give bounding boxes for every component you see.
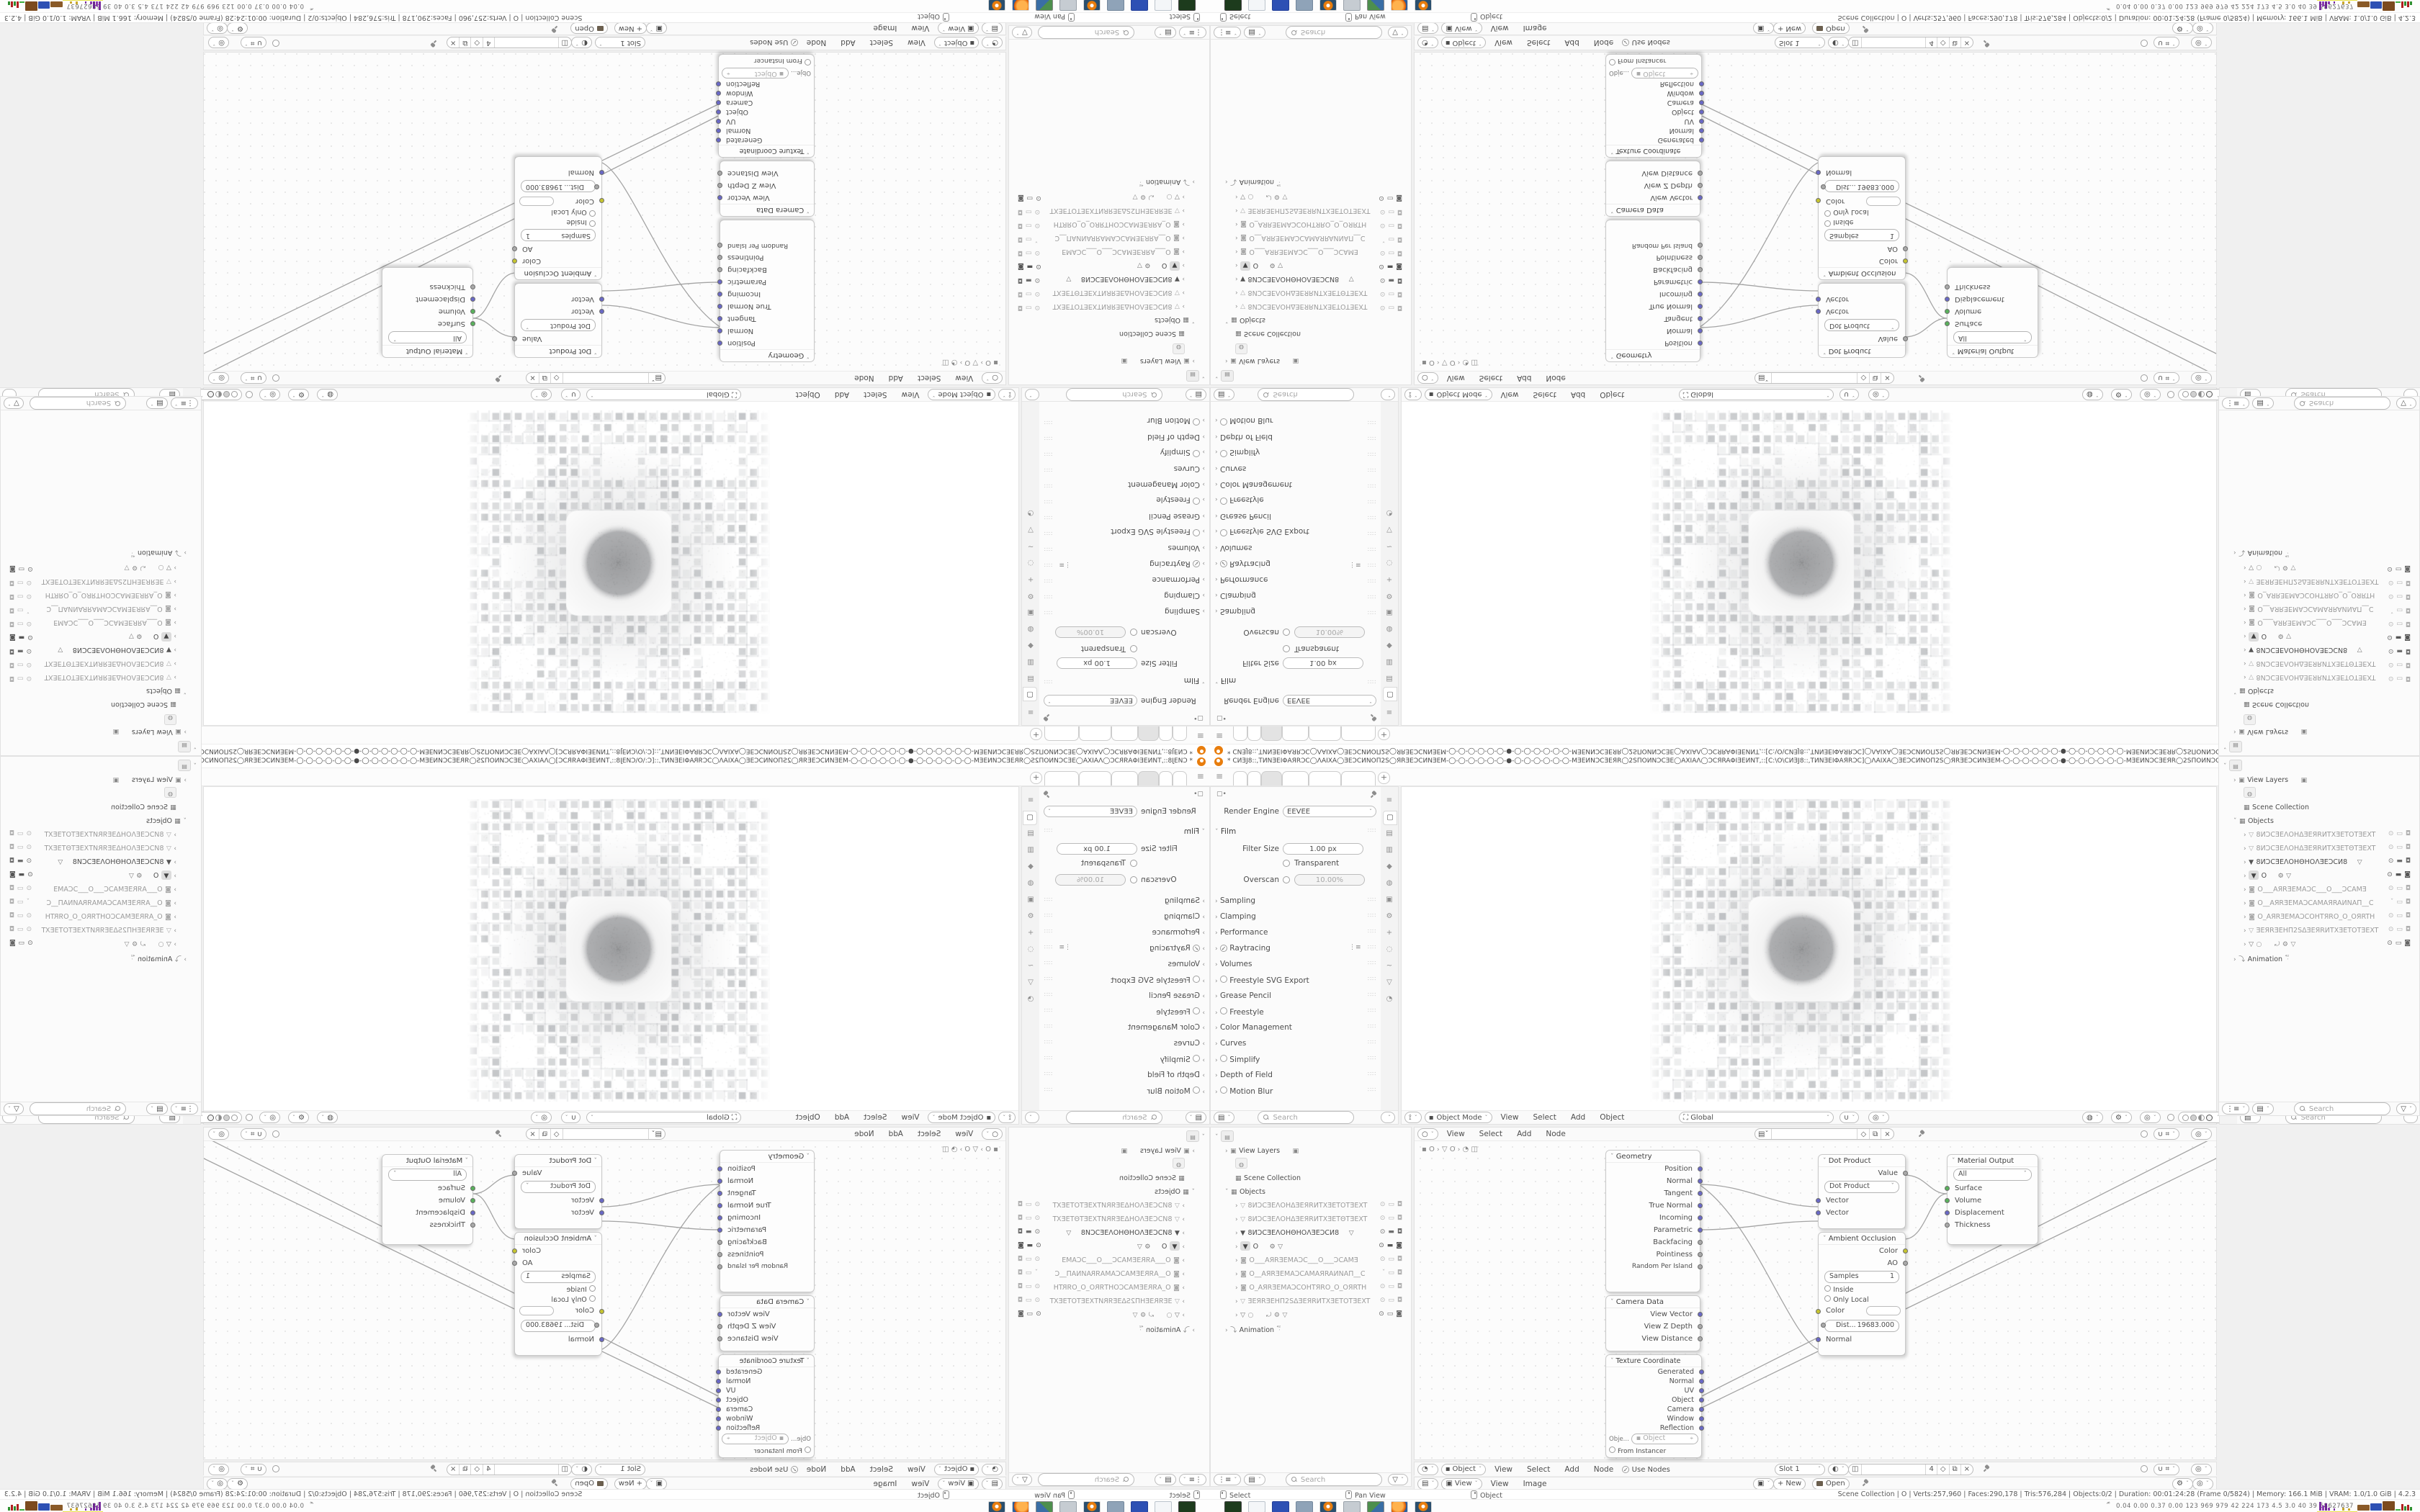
objects-collection-row[interactable]: ˇ ▦ Objects [2219,814,2419,827]
outliner-scene-row[interactable]: ˇ ▤ [1009,1130,1209,1143]
outliner-scene-row[interactable]: ˇ ▤ [1,740,201,752]
tab-viewlayer-icon[interactable]: ▥ [1024,655,1037,668]
editor-type-button[interactable]: ◔ˇ [1417,1464,1438,1475]
taskbar-floppy64-icon[interactable] [1131,0,1148,11]
menu-node[interactable]: Node [848,1130,879,1138]
fake-user-shield-icon[interactable]: ◇ [1857,1129,1870,1139]
add-workspace-button[interactable]: + [1378,772,1390,784]
taskbar-notepad-icon[interactable] [1155,0,1172,11]
mode-select[interactable]: ▪ Object Modeˇ [1425,1112,1492,1123]
editor-type-button[interactable]: ○ˇ [982,1128,1003,1140]
gizmo-dropdown[interactable]: ⚙ˇ [2111,1112,2132,1123]
taskbar-display-icon[interactable] [1367,1501,1384,1512]
open-image-button[interactable]: Open [1812,23,1850,35]
object-row[interactable]: › ▽ 8ИϽCƎEΛOHΔƎEЯRИTXƎETOTƎEXT⊙▭◘ [1,672,201,684]
search-input[interactable]: Search [30,1102,126,1115]
taskbar-blender-icon[interactable] [1083,1501,1101,1512]
object-row[interactable]: › ▽ ƎEЯRƎEHΠ2SΔƎEЯRИTXƎETOTƎEXT⊙▭◘ [1009,1295,1209,1307]
object-row[interactable]: › ▽ ƎEЯRƎEHΠ2SΔƎEЯRИTXƎETOTƎEXT⊙▭◘ [1211,1295,1411,1307]
material-users-count[interactable]: 4 [483,38,493,48]
menu-view[interactable]: View [1485,24,1515,33]
filter-button[interactable]: ▽ˇ [2396,1103,2416,1115]
menu-node[interactable]: Node [1588,1465,1619,1474]
open-image-button[interactable]: Open [570,1478,608,1490]
menu-select[interactable]: Select [1521,1465,1556,1474]
overlays-dropdown[interactable]: ◎ˇ [208,1464,229,1475]
scene-collection-row[interactable]: ▦ Scene Collection [2219,801,2419,813]
search-input[interactable]: Search [1038,26,1134,39]
taskbar-screenshot-icon[interactable] [1178,0,1196,11]
object-row[interactable]: › ▼ 8ИϽCƎEΛOHΘHOΛƎEϽCИ8 ▽⊙▬◘ [1009,274,1209,286]
tab-object-icon[interactable]: ▣ [1383,894,1396,906]
filter-collection-button[interactable]: ▤ˇ [1155,1474,1175,1485]
snap-toggle[interactable]: ∪ˇ [1839,1112,1859,1123]
tab-object-icon[interactable]: ▣ [1024,894,1037,906]
fake-user-shield-icon[interactable]: ◇ [550,373,563,383]
menu-add[interactable]: Add [1559,39,1585,48]
node-canvas[interactable]: ▪ O › ▽ O › ◔ ◫ ˇ Geometry Posi [1415,53,2216,371]
outliner-scene-row[interactable]: ˇ ▤ [1009,369,1209,382]
material-browse-icon[interactable]: ◐ˇ [571,1464,592,1475]
copy-icon[interactable]: ⧉ [1870,373,1881,383]
node-texture-coordinate[interactable]: ˇ Texture Coordinate Generated Normal UV… [718,54,815,158]
taskbar-notepad-icon[interactable] [1248,0,1265,11]
options-button[interactable]: ˇ [1025,389,1039,400]
panel-grease-pencil[interactable]: › Grease Pencil [1215,512,1271,521]
object-row[interactable]: › ◙ O___AЯRƎEMAϽC___O___ϽCAMƎ⊙▭◘ [1,617,201,629]
world-row[interactable]: ◍ [1,787,201,799]
display-mode-button[interactable]: ⋮≡ˇ [171,397,198,409]
object-row-icons[interactable]: › ▽ ○ ⤾ ⚙ ▽⊙▭◙ [1,937,201,950]
overlays-dropdown[interactable]: ◎ˇ [208,372,229,384]
taskbar-calculator2-icon[interactable] [1059,1501,1077,1512]
node-texture-coordinate[interactable]: ˇ Texture Coordinate Generated Normal UV… [1605,1354,1702,1458]
panel-performance[interactable]: › Performance [1215,928,1268,937]
workspace-tab[interactable] [1111,726,1138,741]
panel-freestyle[interactable]: › Freestyle [1156,495,1205,505]
search-input[interactable]: Search [2294,1102,2390,1115]
taskbar-calculator-icon[interactable] [1296,0,1313,11]
snap-toggle-circle[interactable] [2141,1130,2148,1138]
object-row[interactable]: › ◙ O___AЯRƎEMAϽC___O___ϽCAMƎ⊙▭◘ [1,883,201,895]
display-mode-button[interactable]: ⋮≡ˇ [1214,27,1241,38]
taskbar-notepad-icon[interactable] [1248,1501,1265,1512]
animation-row[interactable]: › ⤵ Animation ⁴²̦ [1211,178,1411,190]
fake-user-shield-icon[interactable]: ◇ [1937,1464,1950,1475]
view-layers-row[interactable]: › ▣ View Layers ▣ [1,773,201,786]
pin-icon[interactable] [495,374,501,383]
material-datablock-selector[interactable]: ◫ 4 ◇ ⧉ × [447,37,572,49]
add-workspace-button[interactable]: + [1378,728,1390,740]
tab-particles-icon[interactable]: + [1383,572,1396,585]
editor-type-button[interactable]: ⟟ˇ [998,1112,1016,1123]
transparent-checkbox[interactable] [1283,860,1290,869]
object-row[interactable]: › ▽ 8ИϽCƎEΛOHΔƎEЯRИTXƎETΘTƎEXT⊙▭◘ [2219,658,2419,670]
overlays-dropdown[interactable]: ◎ˇ [2192,23,2213,35]
copy-icon[interactable]: ⧉ [459,38,470,48]
filter-collection-button[interactable]: ▤ˇ [1244,1474,1265,1485]
workspace-tab[interactable] [1247,726,1261,741]
pin-icon[interactable] [1043,712,1049,721]
workspace-tab[interactable] [1079,771,1111,786]
tab-object-icon[interactable]: ▣ [1024,606,1037,618]
node-texture-coordinate[interactable]: ˇ Texture Coordinate Generated Normal UV… [1605,54,1702,158]
display-mode-button[interactable]: ⋮≡ˇ [1214,1474,1241,1485]
object-row[interactable]: › ▽ 8ИϽCƎEΛOHΔƎEЯRИTXƎETΘTƎEXT⊙▭◘ [1,842,201,854]
taskbar-calculator-icon[interactable] [1296,1501,1313,1512]
panel-freestyle-svg[interactable]: › Freestyle SVG Export [1111,976,1205,985]
material-browse-icon[interactable]: ▤ˇ [1755,1129,1772,1139]
panel-simplify[interactable]: › Simplify [1160,448,1205,457]
editor-type-button[interactable]: ○ˇ [1417,1128,1438,1140]
shader-type-select[interactable]: ▪ Objectˇ [1441,37,1486,49]
unlink-icon[interactable]: × [447,38,459,48]
tab-physics-icon[interactable]: ◌ [1024,943,1037,956]
editor-type-button[interactable]: ▤ˇ [1186,1112,1206,1123]
outliner-scene-row[interactable]: ˇ ▤ [1211,369,1411,382]
snap-toggle-circle[interactable] [2141,374,2148,382]
unlink-icon[interactable]: × [1961,38,1973,48]
taskbar-notepad-icon[interactable] [1155,1501,1172,1512]
gizmo-dropdown[interactable]: ⚙ˇ [227,1478,248,1490]
objects-collection-row[interactable]: ˇ ▦ Objects [1,814,201,827]
proportional-edit-toggle[interactable]: ◎ˇ [1868,389,1889,400]
overlays-dropdown[interactable]: ◎ˇ [2191,37,2212,49]
menu-view[interactable]: View [896,390,926,399]
pin-icon[interactable] [495,1130,501,1139]
tab-world-icon[interactable]: ◍ [1383,622,1396,635]
menu-select[interactable]: Select [912,1130,946,1138]
overlays-dropdown[interactable]: ◎ˇ [207,1478,228,1490]
menu-burger-icon[interactable]: ≡ [1197,771,1204,781]
taskbar-blender2-icon[interactable] [1415,1501,1432,1512]
taskbar-floppy64-icon[interactable] [1272,0,1289,11]
menu-view[interactable]: View [1489,39,1518,48]
material-slot-select[interactable]: Slot 1ˇ [595,1464,645,1475]
scene-collection-row[interactable]: ▦ Scene Collection [1,699,201,711]
snap-dropdown[interactable]: ∪ ⌗ˇ [241,1464,266,1475]
viewport-3d[interactable]: ⟟ˇ ▪ Object Modeˇ View Select Add Object… [203,387,1019,726]
taskbar-firefox-icon[interactable] [1391,1501,1408,1512]
panel-color-management[interactable]: › Color Management [1215,1023,1292,1032]
overscan-field[interactable]: 10.00% [1055,626,1126,638]
object-row-active[interactable]: › ▼ O ⚙ ▽⊙▬◙ [1009,1240,1209,1252]
snap-dropdown[interactable]: ∪ ⌗ˇ [241,37,266,49]
use-nodes-checkbox[interactable]: ✓ Use Nodes [1622,38,1670,48]
panel-volumes[interactable]: › Volumes [1215,960,1252,968]
editor-type-button[interactable]: ⟟ˇ [1404,389,1422,400]
film-panel-header[interactable]: ˇ Film [1184,676,1205,685]
world-row[interactable]: ◍ [1,713,201,725]
tab-render-icon[interactable]: ▢ [1383,687,1397,701]
menu-add[interactable]: Add [883,1130,909,1138]
viewport-3d[interactable]: ⟟ˇ ▪ Object Modeˇ View Select Add Object… [1401,387,2217,726]
workspace-tab[interactable] [1309,771,1341,786]
material-datablock-selector[interactable]: ◫ 4 ◇ ⧉ × [1848,1464,1973,1475]
world-row[interactable]: ◍ [1211,342,1411,354]
new-image-button[interactable]: + New [1773,1478,1806,1490]
material-users-count[interactable]: 4 [483,1464,493,1475]
overlays-dropdown[interactable]: ◎ˇ [259,1112,280,1123]
node-canvas[interactable]: ▪ O › ▽ O › ◔ ◫ ˇ Geometry Posi [1415,1141,2216,1459]
object-row[interactable]: › ◙ O__AЯRƎEMAϽCAMAЯRAИNAΠ__Cˇ▭◘ [1,603,201,616]
filter-button[interactable]: ▽ˇ [4,1103,24,1115]
fake-user-shield-icon[interactable]: ◇ [1937,38,1950,48]
xray-toggle[interactable] [2167,1114,2174,1121]
pin-icon[interactable] [1863,1479,1869,1488]
material-name-field[interactable] [1862,38,1926,48]
workspace-tab[interactable] [1309,726,1341,741]
search-input[interactable]: Search [1038,1473,1134,1486]
filter-collection-button[interactable]: ▤ˇ [2252,1103,2273,1115]
unlink-icon[interactable]: × [526,1129,538,1139]
object-row-icons[interactable]: › ▽ ○ ⤾ ⚙ ▽⊙▭◙ [2219,937,2419,950]
workspace-tab[interactable] [1173,771,1187,786]
material-browse-icon[interactable]: ▤ˇ [648,1129,665,1139]
menu-view[interactable]: View [896,1113,926,1122]
menu-add[interactable]: Add [829,1113,855,1122]
object-row[interactable]: › ▼ 8ИϽCƎEΛOHΘHOΛƎEϽCИ8 ▽⊙▬◘ [1,644,201,657]
tab-viewlayer-icon[interactable]: ▥ [1024,844,1037,857]
options-button[interactable]: ˇ [1381,1112,1395,1123]
objects-collection-row[interactable]: ˇ ▦ Objects [1211,1185,1411,1197]
object-row[interactable]: › ▽ 8ИϽCƎEΛOHΔƎEЯRИTXƎETOTƎEXT⊙▭◘ [1009,301,1209,313]
pin-icon[interactable] [1371,791,1377,800]
menu-image[interactable]: Image [1518,1480,1553,1488]
tab-object-icon[interactable]: ▣ [1383,606,1396,618]
shader-type-select[interactable]: ▪ Objectˇ [934,1464,979,1475]
object-row[interactable]: › ▼ 8ИϽCƎEΛOHΘHOΛƎEϽCИ8 ▽⊙▬◘ [2219,644,2419,657]
world-row[interactable]: ◍ [1211,1158,1411,1170]
pin-icon[interactable] [430,38,436,48]
scene-collection-row[interactable]: ▦ Scene Collection [1009,1171,1209,1184]
open-image-button[interactable]: Open [1812,1478,1850,1490]
menu-view[interactable]: View [905,1480,935,1488]
visibility-dropdown[interactable]: ◍ˇ [2082,389,2103,400]
ao-distance-field[interactable]: Dist...19683.000 [521,1320,596,1332]
overlays-dropdown[interactable]: ◎ˇ [259,389,280,400]
fake-user-shield-icon[interactable]: ◇ [1857,373,1870,383]
xray-toggle[interactable] [246,1114,253,1121]
object-row[interactable]: › ◙ O___AЯRƎEMAϽC___O___ϽCAMƎ⊙▭◘ [1211,1254,1411,1266]
ao-samples-field[interactable]: Samples1 [1824,1271,1899,1283]
object-row-icons[interactable]: › ▽ ○ ⤾ ⚙ ▽⊙▭◙ [1009,192,1209,204]
snap-toggle-circle[interactable] [272,1465,279,1472]
editor-type-button[interactable]: ◔ˇ [982,37,1003,49]
copy-icon[interactable]: ⧉ [1870,1129,1881,1139]
tab-tool-icon[interactable]: ≡ [1024,794,1037,807]
node-camera-data[interactable]: ˇ Camera Data View Vector View Z Depth V… [720,1295,815,1351]
objects-collection-row[interactable]: ˇ ▦ Objects [1009,315,1209,327]
filter-collection-button[interactable]: ▤ˇ [2252,397,2273,409]
object-row[interactable]: › ▽ ƎEЯRƎEHΠ2SΔƎEЯRИTXƎETOTƎEXT⊙▭◘ [1,924,201,936]
tab-scene-icon[interactable]: ◆ [1383,639,1396,652]
node-ambient-occlusion[interactable]: ˇ Ambient Occlusion Color AO Samples1 In… [1818,156,1906,280]
ao-color-swatch[interactable] [1866,197,1901,206]
tab-particles-icon[interactable]: + [1024,927,1037,940]
object-row-icons[interactable]: › ▽ ○ ⤾ ⚙ ▽⊙▭◙ [1211,192,1411,204]
menu-burger-icon[interactable]: ≡ [1216,771,1223,781]
fake-user-shield-icon[interactable]: ◇ [470,1464,483,1475]
editor-type-button[interactable]: ◔ˇ [982,1464,1003,1475]
tab-viewlayer-icon[interactable]: ▥ [1383,844,1396,857]
objects-collection-row[interactable]: ˇ ▦ Objects [1,685,201,698]
filter-collection-button[interactable]: ▤ˇ [146,397,167,409]
copy-icon[interactable]: ⧉ [539,373,550,383]
panel-raytracing[interactable]: › ✓ Raytracing [1215,559,1270,568]
menu-select[interactable]: Select [864,39,899,48]
options-button[interactable]: ˇ [1025,1112,1039,1123]
view-layers-row[interactable]: › ▣ View Layers ▣ [1009,1144,1209,1156]
panel-clamping[interactable]: › Clamping [1215,591,1256,600]
add-workspace-button[interactable]: + [1030,772,1042,784]
taskbar-blender-icon[interactable] [1319,0,1337,11]
display-mode-button[interactable]: ⋮≡ˇ [2222,397,2249,409]
workspace-tab-active[interactable] [1261,771,1282,786]
pin-icon[interactable] [1919,374,1925,383]
object-row[interactable]: › ▽ 8ИϽCƎEΛOHΔƎEЯRИTXƎETOTƎEXT⊙▭◘ [2219,828,2419,840]
material-datablock-selector[interactable]: ▤ˇ ◇ ⧉ × [1754,372,1894,384]
transform-orientation-select[interactable]: ⛶ Globalˇ [586,389,741,400]
menu-node[interactable]: Node [1588,39,1619,48]
object-row[interactable]: › ▽ 8ИϽCƎEΛOHΔƎEЯRИTXƎETOTƎEXT⊙▭◘ [1211,301,1411,313]
material-name-field[interactable] [1772,373,1857,383]
outliner-scene-row[interactable]: ˇ ▤ [2219,740,2419,752]
editor-type-button[interactable]: ◔ˇ [1417,37,1438,49]
snap-toggle-circle[interactable] [2141,1465,2148,1472]
tab-particles-icon[interactable]: + [1383,927,1396,940]
ao-samples-field[interactable]: Samples1 [1824,229,1899,241]
filter-collection-button[interactable]: ▤ˇ [1244,27,1265,38]
menu-view[interactable]: View [1441,1130,1471,1138]
menu-view[interactable]: View [1441,374,1471,382]
ao-samples-field[interactable]: Samples1 [521,229,596,241]
menu-select[interactable]: Select [858,390,892,399]
taskbar-calculator-icon[interactable] [1107,0,1124,11]
shading-mode-buttons[interactable]: ˇ [2178,389,2224,400]
object-row[interactable]: › ◙ O_AЯRƎEMAϽCOHTЯRO_O_OЯRTH⊙▭◘ [1,910,201,922]
material-users-count[interactable]: 4 [1926,1464,1937,1475]
material-browse-icon[interactable]: ◐ˇ [1828,1464,1849,1475]
animation-row[interactable]: › ⤵ Animation ⁴²̦ [1,951,201,963]
workspace-tab[interactable] [1159,771,1173,786]
editor-type-button[interactable]: ▤ˇ [1186,389,1206,400]
unlink-icon[interactable]: × [526,373,538,383]
workspace-tab[interactable] [1341,771,1376,786]
editor-type-button[interactable]: ▤ˇ [1214,1112,1234,1123]
transparent-checkbox[interactable] [1283,643,1290,652]
menu-add[interactable]: Add [1565,1113,1591,1122]
object-row-icons[interactable]: › ▽ ○ ⤾ ⚙ ▽⊙▭◙ [1009,1308,1209,1320]
panel-freestyle[interactable]: › Freestyle [1215,495,1264,505]
taskbar-firefox-icon[interactable] [1012,0,1029,11]
tab-data-icon[interactable]: ▽ [1024,523,1037,536]
proportional-edit-toggle[interactable]: ◎ˇ [1868,1112,1889,1123]
object-row-active[interactable]: › ▼ O ⚙ ▽⊙▬◙ [2219,631,2419,643]
visibility-dropdown[interactable]: ◍ˇ [317,389,338,400]
menu-node[interactable]: Node [1540,1130,1571,1138]
output-target-select[interactable]: Allˇ [388,1169,467,1181]
filter-size-field[interactable]: 1.00 px [1057,843,1137,855]
new-image-button[interactable]: + New [1773,23,1806,35]
object-row[interactable]: › ▽ ƎEЯRƎEHΠ2SΔƎEЯRИTXƎETOTƎEXT⊙▭◘ [1,576,201,588]
overscan-field[interactable]: 10.00% [1055,874,1126,886]
overscan-field[interactable]: 10.00% [1294,874,1365,886]
overlays-dropdown[interactable]: ◎ˇ [2191,1128,2212,1140]
tab-particles-icon[interactable]: + [1024,572,1037,585]
workspace-tab[interactable] [1173,726,1187,741]
panel-raytracing[interactable]: › ✓ Raytracing [1149,944,1205,953]
menu-object[interactable]: Object [790,390,826,399]
search-input[interactable]: Search [30,397,126,410]
node-ambient-occlusion[interactable]: ˇ Ambient Occlusion Color AO Samples1 In… [1818,1232,1906,1356]
menu-select[interactable]: Select [1474,374,1508,382]
fake-user-shield-icon[interactable]: ◇ [550,1129,563,1139]
panel-curves[interactable]: › Curves [1174,464,1205,473]
object-row-icons[interactable]: › ▽ ○ ⤾ ⚙ ▽⊙▭◙ [1211,1308,1411,1320]
gizmo-dropdown[interactable]: ⚙ˇ [2172,23,2193,35]
menu-select[interactable]: Select [1527,390,1561,399]
vector-math-operation-select[interactable]: Dot Productˇ [521,319,596,331]
taskbar-blender2-icon[interactable] [988,1501,1005,1512]
tab-output-icon[interactable]: ▤ [1024,827,1037,840]
menu-view[interactable]: View [1495,390,1525,399]
object-row[interactable]: › ◙ O__AЯRƎEMAϽCAMAЯRAИNAΠ__Cˇ▭◘ [1,896,201,909]
outliner-scene-row[interactable]: ˇ ▤ [1,760,201,772]
image-browse-icon[interactable]: ▣ˇ [1753,1478,1774,1490]
material-slot-select[interactable]: Slot 1ˇ [595,37,645,49]
panel-freestyle[interactable]: › Freestyle [1156,1007,1205,1017]
tab-scene-icon[interactable]: ◆ [1383,860,1396,873]
proportional-edit-toggle[interactable]: ◎ˇ [531,1112,552,1123]
object-row[interactable]: › ▽ 8ИϽCƎEΛOHΔƎEЯRИTXƎETΘTƎEXT⊙▭◘ [1009,287,1209,300]
object-row[interactable]: › ▽ 8ИϽCƎEΛOHΔƎEЯRИTXƎETΘTƎEXT⊙▭◘ [1009,1212,1209,1225]
use-nodes-checkbox[interactable]: ✓ Use Nodes [750,1464,798,1474]
object-row[interactable]: › ◙ O___AЯRƎEMAϽC___O___ϽCAMƎ⊙▭◘ [2219,617,2419,629]
output-target-select[interactable]: Allˇ [1953,331,2032,343]
tab-render-icon[interactable]: ▢ [1383,811,1397,825]
material-name-field[interactable] [494,38,558,48]
material-name-field[interactable] [1772,1129,1857,1139]
menu-view[interactable]: View [902,1465,931,1474]
copy-icon[interactable]: ⧉ [1950,38,1961,48]
object-row[interactable]: › ▼ 8ИϽCƎEΛOHΘHOΛƎEϽCИ8 ▽⊙▬◘ [1211,274,1411,286]
editor-type-button[interactable]: ⟟ˇ [998,389,1016,400]
render-engine-select[interactable]: EEVEEˇ [1044,695,1137,706]
panel-volumes[interactable]: › Volumes [1168,544,1205,552]
render-engine-select[interactable]: EEVEEˇ [1283,695,1376,706]
filter-size-field[interactable]: 1.00 px [1057,657,1137,669]
object-row[interactable]: › ◙ O_AЯRƎEMAϽCOHTЯRO_O_OЯRTH⊙▭◘ [2219,590,2419,602]
ao-color-swatch[interactable] [519,197,554,206]
tab-physics-icon[interactable]: ◌ [1383,943,1396,956]
output-target-select[interactable]: Allˇ [388,331,467,343]
scene-collection-row[interactable]: ▦ Scene Collection [2219,699,2419,711]
tab-scene-icon[interactable]: ◆ [1024,639,1037,652]
ao-color-swatch[interactable] [1866,1306,1901,1315]
gizmo-dropdown[interactable]: ⚙ˇ [2172,1478,2193,1490]
menu-burger-icon[interactable]: ≡ [1216,731,1223,741]
node-geometry[interactable]: ˇ Geometry Position Normal Tangent True … [1605,220,1700,362]
image-browse-icon[interactable]: ▣ˇ [646,23,667,35]
transform-orientation-select[interactable]: ⛶ Globalˇ [586,1112,741,1123]
object-row[interactable]: › ◙ O_AЯRƎEMAϽCOHTЯRO_O_OЯRTH⊙▭◘ [1009,219,1209,231]
editor-type-button[interactable]: ▤ˇ [1417,23,1438,35]
tab-constraints-icon[interactable]: ~ [1383,960,1396,973]
panel-motion-blur[interactable]: › Motion Blur [1147,1086,1205,1096]
use-nodes-checkbox[interactable]: ✓ Use Nodes [1622,1464,1670,1474]
panel-depth-of-field[interactable]: › Depth of Field [1215,1071,1273,1079]
